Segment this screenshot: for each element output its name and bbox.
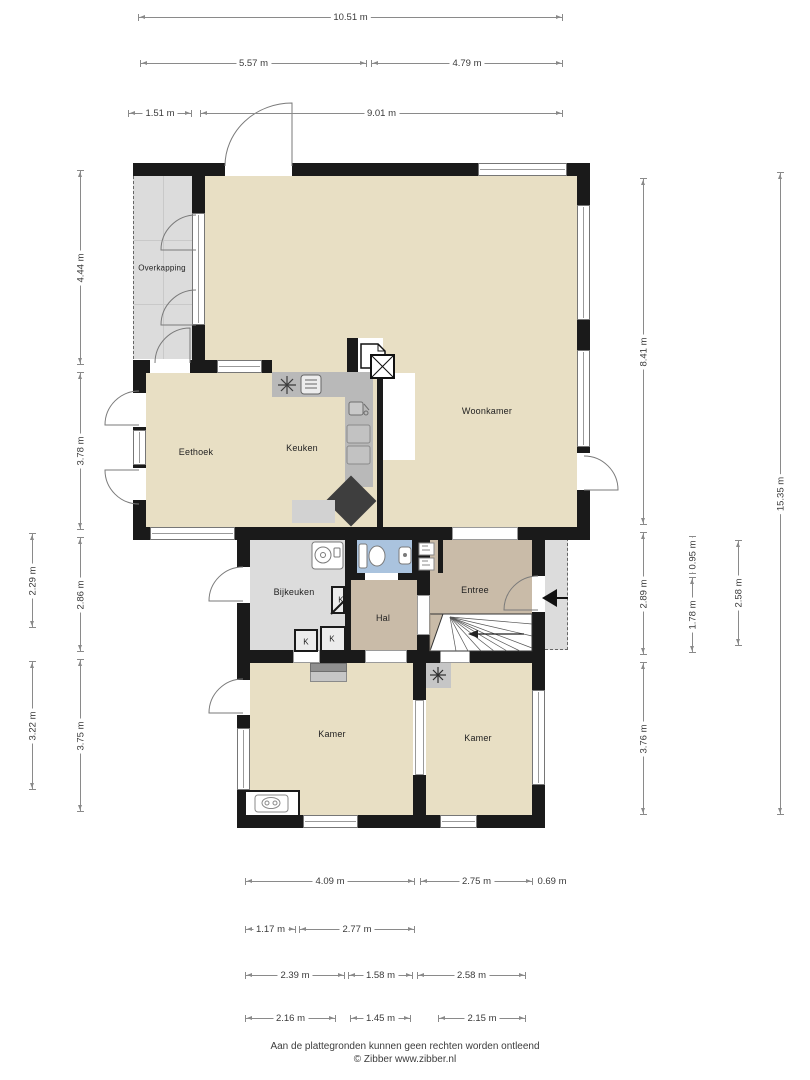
dimension-label: 15.35 m	[776, 473, 787, 513]
dimension-v: 2.58 m	[738, 540, 739, 646]
dimension-tick	[29, 661, 36, 662]
room-kamer-links-floor	[250, 663, 413, 815]
room-label-keuken: Keuken	[286, 443, 318, 453]
dimension-label: 1.51 m	[142, 108, 177, 119]
dimension-tick	[641, 518, 645, 523]
dimension-tick	[202, 111, 207, 115]
dimension-label: 9.01 m	[364, 108, 399, 119]
dimension-tick	[29, 627, 36, 628]
door-gap-bijkeuken-left	[237, 567, 250, 603]
dimension-label: 2.77 m	[339, 924, 374, 935]
room-label-eethoek: Eethoek	[179, 447, 213, 457]
dimension-tick	[689, 573, 696, 574]
dimension-tick	[30, 663, 34, 668]
window-eethoek-bottom	[150, 527, 235, 540]
dimension-tick	[556, 111, 561, 115]
dimension-label: 2.15 m	[464, 1013, 499, 1024]
dimension-tick	[245, 878, 246, 885]
dimension-label: 2.58 m	[454, 970, 489, 981]
dimension-v: 15.35 m	[780, 172, 781, 815]
dimension-tick	[735, 540, 742, 541]
dimension-label: 0.95 m	[688, 537, 699, 572]
dimension-tick	[414, 878, 415, 885]
dimension-tick	[440, 1016, 445, 1020]
dimension-tick	[556, 15, 561, 19]
dimension-v: 3.22 m	[32, 661, 33, 790]
dimension-tick	[562, 60, 563, 67]
dimension-label: 2.86 m	[76, 577, 87, 612]
dimension-tick	[519, 973, 524, 977]
dimension-h: 10.51 m	[138, 17, 563, 18]
dimension-tick	[77, 659, 84, 660]
dimension-tick	[736, 639, 740, 644]
dimension-tick	[526, 879, 531, 883]
dimension-tick	[640, 654, 647, 655]
dimension-tick	[360, 61, 365, 65]
window-top-right	[478, 163, 567, 176]
door-gap-toilet	[365, 573, 398, 580]
dimension-tick	[138, 14, 139, 21]
door-gap-eethoek-left-1	[133, 393, 146, 427]
dimension-tick	[140, 15, 145, 19]
dimension-tick	[352, 1016, 357, 1020]
opening-entree-kamer	[440, 650, 470, 663]
window-kamer-rechts-right	[532, 690, 545, 785]
dimension-tick	[438, 1015, 439, 1022]
dimension-h: 4.09 m	[245, 881, 415, 882]
dimension-label: 2.89 m	[639, 576, 650, 611]
door-gap-overkapping-bottom	[150, 360, 190, 373]
dimension-tick	[412, 972, 413, 979]
kitchen-counter-top	[272, 372, 373, 397]
dimension-v: 4.44 m	[80, 170, 81, 365]
wall-kamer-divider-top	[413, 663, 426, 700]
room-label-kast-1: K	[338, 596, 344, 605]
dimension-tick	[78, 358, 82, 363]
dimension-tick	[689, 577, 696, 578]
dimension-h: 1.17 m	[245, 929, 296, 930]
keuken-nook	[383, 373, 415, 460]
dimension-h: 2.75 m	[420, 881, 533, 882]
dimension-label: 10.51 m	[330, 12, 370, 23]
dimension-tick	[641, 180, 645, 185]
dimension-tick	[30, 621, 34, 626]
dimension-h: 1.51 m	[128, 113, 192, 114]
dimension-tick	[77, 364, 84, 365]
kitchen-counter-right	[345, 397, 373, 487]
dimension-tick	[200, 110, 201, 117]
dimension-tick	[736, 542, 740, 547]
dimension-v: 2.86 m	[80, 537, 81, 652]
dimension-tick	[641, 808, 645, 813]
dimension-tick	[78, 805, 82, 810]
dimension-label: 5.57 m	[236, 58, 271, 69]
room-entree-floor	[430, 540, 532, 653]
dimension-tick	[29, 533, 36, 534]
wall-flue	[347, 338, 358, 372]
dimension-tick	[78, 172, 82, 177]
dimension-h: 2.77 m	[299, 929, 415, 930]
room-label-overkapping: Overkapping	[138, 264, 186, 273]
door-gap-top	[225, 163, 292, 176]
room-label-entree: Entree	[461, 585, 489, 595]
dimension-label: 3.76 m	[639, 721, 650, 756]
dimension-tick	[245, 972, 246, 979]
dimension-tick	[299, 926, 300, 933]
dimension-tick	[777, 172, 784, 173]
dimension-tick	[130, 111, 135, 115]
dimension-tick	[78, 523, 82, 528]
dimension-tick	[525, 1015, 526, 1022]
window-kamer-rechts-bottom	[440, 815, 477, 828]
dimension-label: 2.75 m	[459, 876, 494, 887]
dimension-v: 8.41 m	[643, 178, 644, 525]
dimension-v: 3.76 m	[643, 662, 644, 815]
dimension-tick	[532, 878, 533, 885]
door-gap-eethoek-left-2	[133, 468, 146, 500]
dimension-tick	[366, 60, 367, 67]
dimension-tick	[777, 814, 784, 815]
dimension-tick	[640, 662, 647, 663]
dimension-tick	[30, 783, 34, 788]
dimension-tick	[77, 811, 84, 812]
dimension-label: 2.29 m	[28, 563, 39, 598]
dimension-tick	[406, 973, 411, 977]
dimension-tick	[338, 973, 343, 977]
dimension-label: 1.78 m	[688, 597, 699, 632]
room-label-bijkeuken: Bijkeuken	[274, 587, 315, 597]
dimension-label: 3.22 m	[28, 708, 39, 743]
dimension-tick	[420, 878, 421, 885]
dimension-tick	[641, 648, 645, 653]
room-label-kamer-links: Kamer	[318, 729, 346, 739]
dimension-tick	[562, 14, 563, 21]
dimension-h: 2.39 m	[245, 975, 345, 976]
dimension-tick	[295, 926, 296, 933]
dimension-tick	[247, 973, 252, 977]
flue-nook	[358, 338, 383, 372]
partition-kamer-divider	[415, 700, 424, 775]
dimension-tick	[556, 61, 561, 65]
dimension-v: 1.78 m	[692, 577, 693, 653]
dimension-tick	[562, 110, 563, 117]
radiator-bottom	[310, 672, 347, 682]
wall-meter-right	[438, 540, 443, 573]
dimension-label: 2.39 m	[277, 970, 312, 981]
window-woonkamer-right-2	[577, 350, 590, 447]
window-eethoek-top	[217, 360, 262, 373]
window-overkapping-wall	[192, 213, 205, 325]
dimension-tick	[245, 1015, 246, 1022]
dimension-tick	[128, 110, 129, 117]
dimension-tick	[78, 661, 82, 666]
dimension-tick	[301, 927, 306, 931]
dimension-h: 2.16 m	[245, 1018, 336, 1019]
dimension-tick	[247, 879, 252, 883]
dimension-label: 2.16 m	[273, 1013, 308, 1024]
dimension-tick	[350, 973, 355, 977]
entrance-arrow-icon	[542, 589, 557, 607]
radiator-top	[310, 663, 347, 672]
dimension-tick	[77, 170, 84, 171]
dimension-v: 2.89 m	[643, 532, 644, 655]
dimension-tick	[373, 61, 378, 65]
dimension-tick	[690, 646, 694, 651]
wall-bijkeuken-toilet	[345, 540, 357, 575]
room-label-woonkamer: Woonkamer	[462, 406, 512, 416]
dimension-tick	[422, 879, 427, 883]
footer-disclaimer: Aan de plattegronden kunnen geen rechten…	[0, 1041, 810, 1052]
dimension-tick	[419, 973, 424, 977]
entrance-arrow-tail	[557, 597, 568, 599]
dimension-h: 2.58 m	[417, 975, 526, 976]
room-label-kast-3: K	[329, 635, 335, 644]
dimension-tick	[641, 664, 645, 669]
dimension-v: 0.95 m	[692, 536, 693, 574]
opening-hal-kamer	[365, 650, 407, 663]
door-gap-woonkamer-right	[577, 453, 590, 490]
dimension-tick	[77, 529, 84, 530]
dimension-label: 4.79 m	[449, 58, 484, 69]
dimension-tick	[78, 374, 82, 379]
vent-unit-box	[426, 663, 451, 688]
dimension-tick	[778, 174, 782, 179]
dimension-tick	[78, 539, 82, 544]
wall-keuken-divider	[377, 372, 383, 527]
dimension-tick	[185, 111, 190, 115]
dimension-h: 9.01 m	[200, 113, 563, 114]
window-kamer-links-left	[237, 728, 250, 790]
room-label-hal: Hal	[376, 613, 390, 623]
window-kamer-links-bottom	[303, 815, 358, 828]
dimension-tick	[142, 61, 147, 65]
dimension-h: 2.15 m	[438, 1018, 526, 1019]
dimension-label: 3.78 m	[76, 433, 87, 468]
dimension-tick	[371, 60, 372, 67]
dimension-h: 1.45 m	[350, 1018, 411, 1019]
dimension-tick	[289, 927, 294, 931]
dimension-label: 8.41 m	[639, 334, 650, 369]
floor-plan-page: OverkappingWoonkamerEethoekKeukenBijkeuk…	[0, 0, 810, 1080]
dimension-tick	[525, 972, 526, 979]
wall-bottom	[237, 815, 545, 828]
dimension-tick	[414, 926, 415, 933]
dimension-tick	[329, 1016, 334, 1020]
dimension-tick	[344, 972, 345, 979]
dimension-tick	[640, 524, 647, 525]
dimension-tick	[640, 532, 647, 533]
dimension-tick	[348, 972, 349, 979]
window-woonkamer-right-1	[577, 205, 590, 320]
dimension-h: 5.57 m	[140, 63, 367, 64]
dimension-h: 4.79 m	[371, 63, 563, 64]
opening-hal-entree	[417, 595, 430, 635]
dimension-label: 1.45 m	[363, 1013, 398, 1024]
dimension-tick	[191, 110, 192, 117]
dimension-tick	[404, 1016, 409, 1020]
dimension-tick	[408, 879, 413, 883]
dimension-tick	[140, 60, 141, 67]
dimension-h: 1.58 m	[348, 975, 413, 976]
dimension-tick	[641, 534, 645, 539]
dimension-tick	[30, 535, 34, 540]
dimension-tick	[245, 926, 246, 933]
dimension-label: 1.17 m	[253, 924, 288, 935]
dimension-tick	[735, 645, 742, 646]
dimension-tick	[77, 651, 84, 652]
dimension-tick	[350, 1015, 351, 1022]
dimension-v: 2.29 m	[32, 533, 33, 628]
dimension-tick	[778, 808, 782, 813]
footer-credit: © Zibber www.zibber.nl	[0, 1054, 810, 1065]
opening-woonkamer-entree	[452, 527, 518, 540]
room-label-kast-2: K	[303, 638, 309, 647]
dimension-tick	[29, 789, 36, 790]
dimension-label: 4.44 m	[76, 250, 87, 285]
dimension-tick	[408, 927, 413, 931]
dimension-tick	[247, 927, 252, 931]
dimension-v: 3.75 m	[80, 659, 81, 812]
dimension-tick	[247, 1016, 252, 1020]
window-eethoek-left	[133, 430, 146, 465]
dimension-label: 3.75 m	[76, 718, 87, 753]
dimension-tick	[77, 372, 84, 373]
room-toilet-floor	[357, 540, 412, 573]
door-gap-kamer-links-left	[237, 680, 250, 715]
dimension-tick	[410, 1015, 411, 1022]
kitchen-counter-bottom	[292, 500, 335, 523]
dimension-label: 1.58 m	[363, 970, 398, 981]
dimension-tick	[690, 579, 694, 584]
dimension-label: 0.69 m	[534, 876, 569, 887]
room-label-kamer-rechts: Kamer	[464, 733, 492, 743]
dimension-h: 0.69 m	[536, 881, 568, 882]
dimension-tick	[78, 645, 82, 650]
dimension-v: 3.78 m	[80, 372, 81, 530]
dimension-label: 2.58 m	[734, 575, 745, 610]
dimension-tick	[335, 1015, 336, 1022]
dimension-tick	[77, 537, 84, 538]
dimension-tick	[689, 652, 696, 653]
dimension-tick	[640, 814, 647, 815]
wall-kamer-divider-bottom	[413, 775, 426, 815]
dimension-tick	[417, 972, 418, 979]
dimension-tick	[640, 178, 647, 179]
dimension-label: 4.09 m	[312, 876, 347, 887]
dimension-tick	[519, 1016, 524, 1020]
